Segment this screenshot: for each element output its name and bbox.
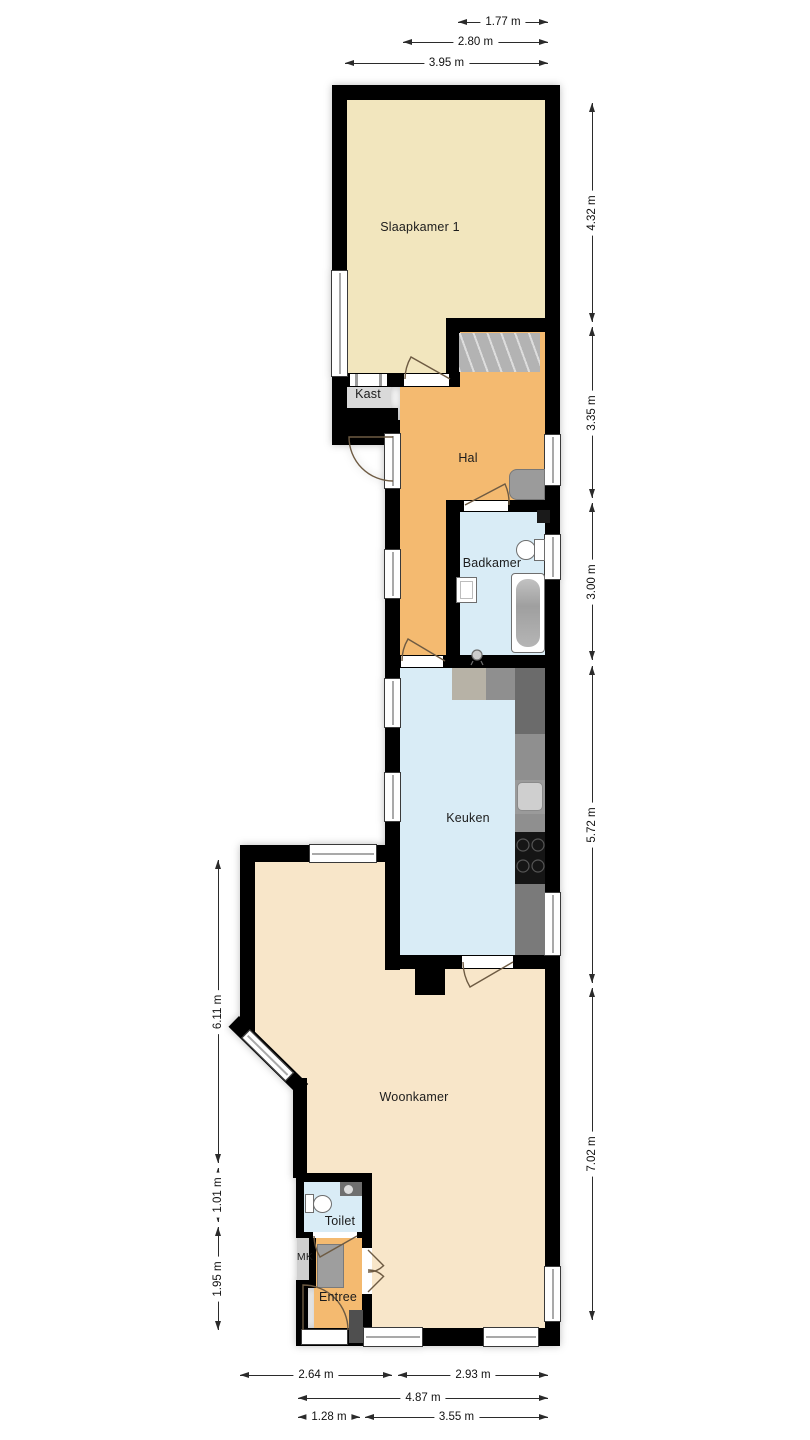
dimension-left-2: 1.01 m xyxy=(210,1168,226,1222)
dimension-top-1: 1.77 m xyxy=(458,14,548,30)
stove-burners xyxy=(517,839,544,872)
label-badkamer: Badkamer xyxy=(463,556,522,570)
dimension-right-4: 5.72 m xyxy=(584,666,600,983)
label-mk: MK xyxy=(297,1251,313,1263)
door-arc-slaapkamer xyxy=(405,357,450,379)
label-keuken: Keuken xyxy=(446,811,490,825)
dimension-bottom-1: 2.64 m xyxy=(240,1367,392,1383)
dimension-right-1: 4.32 m xyxy=(584,103,600,322)
label-kast: Kast xyxy=(355,387,381,401)
label-woonkamer: Woonkamer xyxy=(380,1090,449,1104)
door-arc-hal-keuken xyxy=(402,639,445,661)
floorplan-drawing xyxy=(0,0,810,1440)
door-arc-balcony xyxy=(349,437,393,481)
label-entree: Entree xyxy=(319,1290,357,1304)
dimension-right-5: 7.02 m xyxy=(584,988,600,1320)
dimension-bottom-3: 4.87 m xyxy=(298,1390,548,1406)
door-arc-entree-bottom xyxy=(368,1270,384,1292)
dimension-left-1: 6.11 m xyxy=(210,860,226,1163)
door-arc-toilet xyxy=(314,1236,357,1257)
dimension-bottom-5: 3.55 m xyxy=(365,1409,548,1425)
door-swings xyxy=(0,0,810,1440)
label-hal: Hal xyxy=(458,451,477,465)
dimension-right-2: 3.35 m xyxy=(584,327,600,498)
dimension-left-3: 1.95 m xyxy=(210,1227,226,1330)
door-arc-entree-top xyxy=(368,1250,384,1272)
dimension-bottom-2: 2.93 m xyxy=(398,1367,548,1383)
floorplan-canvas: Slaapkamer 1 Kast Hal Badkamer Keuken Wo… xyxy=(0,0,810,1440)
label-slaapkamer: Slaapkamer 1 xyxy=(380,220,460,234)
door-arc-keuken-woonkamer xyxy=(463,962,513,987)
label-toilet: Toilet xyxy=(325,1214,355,1228)
dimension-bottom-4: 1.28 m xyxy=(298,1409,360,1425)
shower-fixture-icon xyxy=(471,650,483,665)
dimension-top-3: 3.95 m xyxy=(345,55,548,71)
door-arc-badkamer xyxy=(465,484,509,505)
dimension-right-3: 3.00 m xyxy=(584,503,600,660)
dimension-top-2: 2.80 m xyxy=(403,34,548,50)
